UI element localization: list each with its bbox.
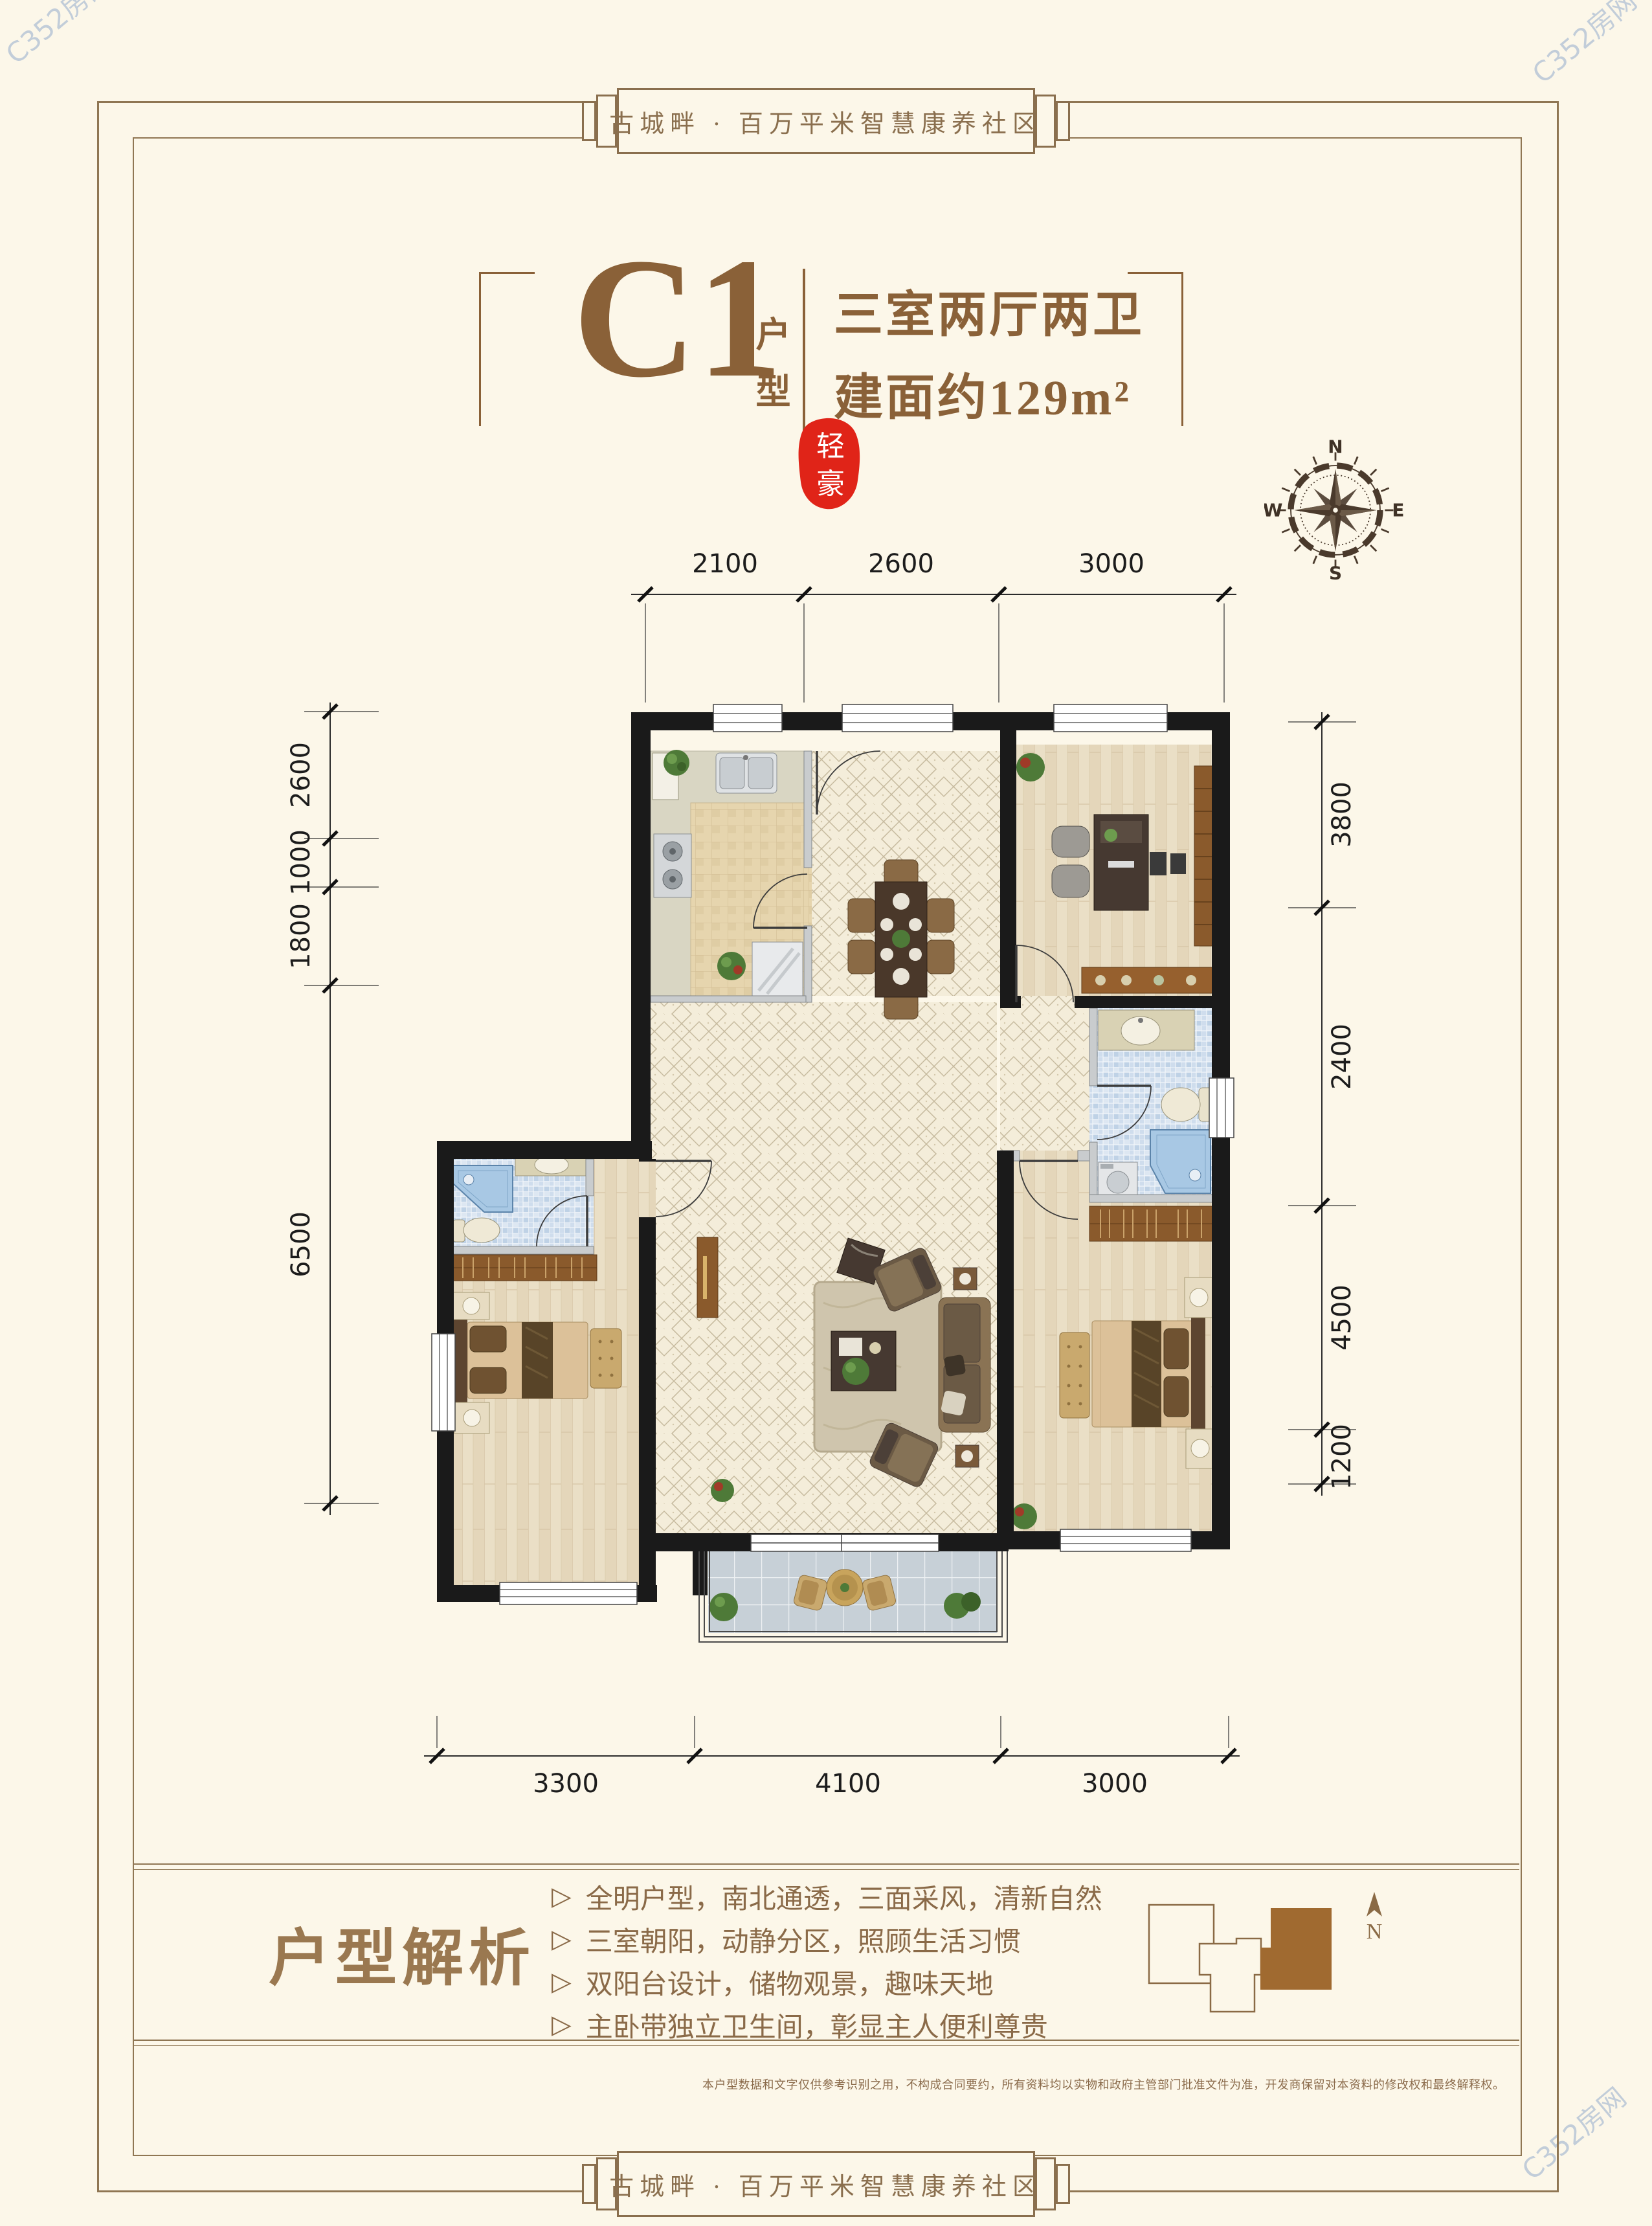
title-bracket-left xyxy=(479,272,535,274)
window xyxy=(500,1582,637,1604)
dim-label: 1800 xyxy=(286,903,316,969)
kitchen-stove xyxy=(654,834,691,897)
dim-label: 4100 xyxy=(815,1769,881,1799)
triangle-bullet-icon: ▷ xyxy=(552,1924,572,1954)
bullet-text: 全明户型，南北通透，三面采风，清新自然 xyxy=(586,1877,1102,1917)
north-arrow-icon xyxy=(1367,1892,1382,1917)
top-banner: 古城畔 · 百万平米智慧康养社区 xyxy=(582,88,1070,154)
bed xyxy=(1092,1317,1205,1431)
side-table xyxy=(954,1268,977,1290)
nightstand xyxy=(454,1402,489,1433)
nightstand xyxy=(1185,1277,1213,1318)
list-item: ▷ 双阳台设计，储物观景，趣味天地 xyxy=(552,1961,1102,2003)
bench xyxy=(1060,1332,1089,1418)
plant-icon xyxy=(717,952,746,980)
dim-label: 6500 xyxy=(286,1211,316,1277)
window xyxy=(713,704,782,732)
window xyxy=(1060,1529,1191,1551)
dim-label: 2100 xyxy=(692,549,758,579)
nightstand xyxy=(1186,1429,1214,1468)
floor-plan: 2100 2600 3000 2600 1000 1800 6500 3800 … xyxy=(259,544,1398,1826)
balcony-table xyxy=(827,1569,863,1606)
disclaimer-text: 本户型数据和文字仅供参考识别之用，不构成合同要约，所有资料均以实物和政府主管部门… xyxy=(702,2076,1440,2093)
bullet-text: 三室朝阳，动静分区，照顾生活习惯 xyxy=(586,1920,1021,1959)
kitchen-fridge xyxy=(752,942,803,996)
dim-label: 1200 xyxy=(1327,1424,1357,1490)
dim-label: 2600 xyxy=(868,549,934,579)
watermark: C352房网 xyxy=(1523,0,1644,91)
list-item: ▷ 主卧带独立卫生间，彰显主人便利尊贵 xyxy=(552,2003,1102,2046)
north-label: N xyxy=(1367,1920,1383,1944)
plant-icon xyxy=(709,1593,738,1621)
unit-spec: 三室两厅两卫 xyxy=(834,275,1144,346)
dim-label: 1000 xyxy=(286,829,316,895)
title-bracket-left xyxy=(479,272,481,426)
washing-machine-icon xyxy=(1099,1162,1137,1198)
window xyxy=(1054,704,1167,732)
dim-label: 3300 xyxy=(533,1769,599,1799)
tv-cabinet xyxy=(697,1237,718,1318)
key-plan: N xyxy=(1139,1878,1398,2027)
banner-text: 古城畔 · 百万平米智慧康养社区 xyxy=(617,2151,1035,2217)
triangle-bullet-icon: ▷ xyxy=(552,1967,572,1997)
banner-cap xyxy=(582,101,596,141)
dim-label: 3000 xyxy=(1078,549,1144,579)
bathroom-vanity xyxy=(1099,1010,1194,1050)
title-bracket-right xyxy=(1181,272,1183,426)
dim-label: 3000 xyxy=(1082,1769,1148,1799)
bullet-text: 主卧带独立卫生间，彰显主人便利尊贵 xyxy=(586,2005,1048,2045)
plant-icon xyxy=(1016,753,1045,781)
sofa xyxy=(939,1298,990,1432)
seal-char-2: 豪 xyxy=(816,467,845,500)
study-cabinet xyxy=(1082,967,1216,993)
window xyxy=(432,1334,455,1431)
dim-label: 3800 xyxy=(1327,781,1357,848)
keyplan-building xyxy=(1200,1939,1261,2012)
coffee-table xyxy=(831,1331,896,1391)
bottom-banner: 古城畔 · 百万平米智慧康养社区 xyxy=(582,2151,1070,2217)
watermark: C352房网 xyxy=(0,0,117,72)
sliding-door xyxy=(751,1535,939,1551)
window xyxy=(842,704,953,732)
floorplan-page: C352房网 C352房网 C352房网 古城畔 · 百万平米智慧康养社区 C1… xyxy=(0,0,1652,2226)
plant-icon xyxy=(664,750,689,776)
bullet-text: 双阳台设计，储物观景，趣味天地 xyxy=(586,1962,994,2002)
banner-cap xyxy=(1056,101,1070,141)
dim-label: 4500 xyxy=(1327,1285,1357,1351)
analysis-bullets: ▷ 全明户型，南北通透，三面采风，清新自然 ▷ 三室朝阳，动静分区，照顾生活习惯… xyxy=(552,1875,1102,2046)
red-seal: 轻 豪 xyxy=(795,416,866,513)
keyplan-highlighted-unit xyxy=(1260,1908,1332,1990)
triangle-bullet-icon: ▷ xyxy=(552,2010,572,2040)
title-bracket-right xyxy=(1128,272,1183,274)
window xyxy=(1209,1078,1234,1138)
list-item: ▷ 三室朝阳，动静分区，照顾生活习惯 xyxy=(552,1918,1102,1961)
section-rule xyxy=(133,1869,1519,1870)
bench xyxy=(590,1329,621,1388)
banner-cap xyxy=(582,2164,596,2204)
banner-cap xyxy=(1056,2164,1070,2204)
triangle-bullet-icon: ▷ xyxy=(552,1882,572,1911)
unit-area: 建面约129m² xyxy=(834,357,1132,429)
kitchen-sink xyxy=(716,753,777,793)
plant-icon xyxy=(1011,1503,1037,1529)
section-rule xyxy=(133,1863,1519,1865)
nightstand xyxy=(453,1292,489,1320)
dim-label: 2600 xyxy=(286,742,316,808)
bed xyxy=(453,1318,588,1402)
banner-cap xyxy=(1035,95,1056,148)
compass-w: W xyxy=(1264,499,1282,521)
toilet-icon xyxy=(453,1220,465,1242)
side-table xyxy=(955,1445,979,1467)
toilet-icon xyxy=(1161,1088,1213,1121)
analysis-title: 户型解析 xyxy=(269,1909,535,1997)
compass-e: E xyxy=(1392,499,1404,521)
list-item: ▷ 全明户型，南北通透，三面采风，清新自然 xyxy=(552,1875,1102,1918)
title-divider xyxy=(803,269,805,434)
plant-icon xyxy=(711,1479,734,1502)
banner-cap xyxy=(1035,2157,1056,2210)
wardrobe xyxy=(452,1255,597,1281)
compass-n: N xyxy=(1328,439,1343,457)
banner-text: 古城畔 · 百万平米智慧康养社区 xyxy=(617,88,1035,154)
dim-label: 2400 xyxy=(1327,1024,1357,1090)
wardrobe xyxy=(1089,1206,1215,1241)
seal-char-1: 轻 xyxy=(816,430,845,463)
unit-code-label: 户型 xyxy=(744,316,796,430)
